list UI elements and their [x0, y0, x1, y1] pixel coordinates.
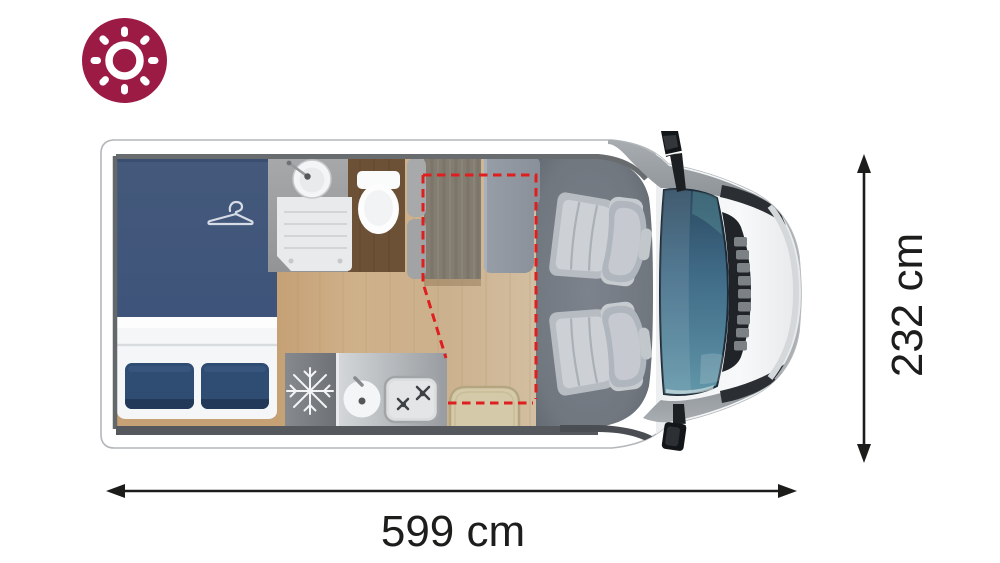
svg-text:599 cm: 599 cm	[381, 507, 525, 556]
svg-text:232 cm: 232 cm	[883, 233, 932, 377]
